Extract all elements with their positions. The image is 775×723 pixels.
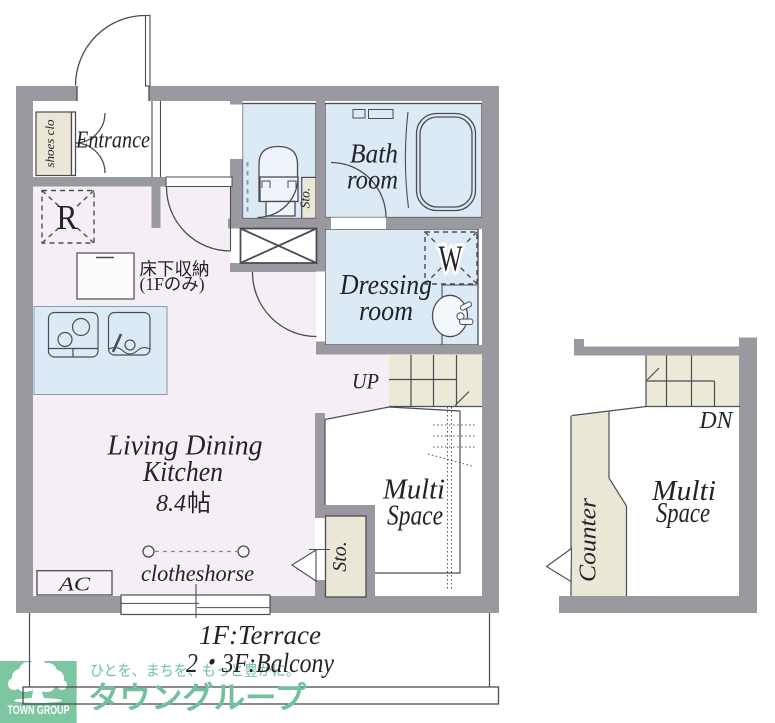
svg-text:UP: UP [352, 369, 379, 394]
svg-text:DN: DN [699, 408, 735, 434]
svg-text:room: room [359, 296, 413, 327]
svg-text:タウングループ: タウングループ [88, 681, 307, 716]
svg-text:Space: Space [387, 501, 443, 532]
svg-text:clotheshorse: clotheshorse [141, 561, 254, 586]
svg-text:shoes clo: shoes clo [42, 119, 57, 168]
svg-text:W: W [439, 239, 463, 280]
svg-text:Kitchen: Kitchen [142, 456, 223, 488]
svg-text:TOWN GROUP: TOWN GROUP [8, 703, 70, 717]
svg-text:AC: AC [57, 574, 91, 596]
svg-text:8.4帖: 8.4帖 [156, 490, 211, 517]
svg-text:1F:Terrace: 1F:Terrace [199, 620, 321, 650]
svg-text:Space: Space [656, 498, 710, 529]
svg-text:Entrance: Entrance [75, 128, 150, 154]
svg-text:R: R [57, 198, 79, 237]
svg-text:Counter: Counter [576, 497, 602, 582]
svg-text:room: room [347, 165, 398, 195]
svg-text:2・3F:Balcony: 2・3F:Balcony [186, 648, 334, 678]
svg-text:Sto.: Sto. [297, 188, 312, 209]
svg-text:Sto.: Sto. [329, 541, 351, 572]
svg-text:(1Fのみ): (1Fのみ) [140, 274, 205, 294]
